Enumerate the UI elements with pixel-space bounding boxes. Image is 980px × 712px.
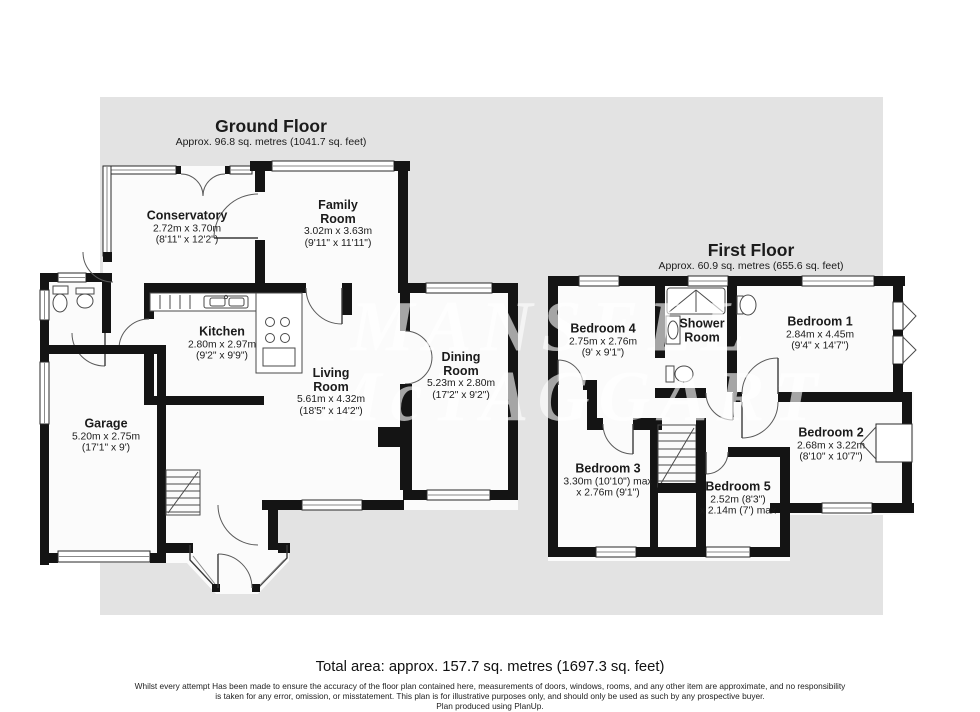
shower-toilet-icon [666,366,693,382]
garage-door [58,551,150,562]
room-label-bedroom-1: Bedroom 1 2.84m x 4.45m (9'4" x 14'7") [786,316,854,353]
disclaimer-line-3: Plan produced using PlanUp. [0,702,980,712]
room-label-family-room: Family Room 3.02m x 3.63m (9'11" x 11'11… [304,199,372,249]
ground-floor-subtitle: Approx. 96.8 sq. metres (1041.7 sq. feet… [176,136,367,149]
kitchen-sink-counter [150,293,262,311]
ground-floor-title-text: Ground Floor [176,117,367,136]
shower-enclosure [667,288,725,314]
room-label-kitchen: Kitchen 2.80m x 2.97m (9'2" x 9'9") [188,326,256,363]
room-label-living-room: Living Room 5.61m x 4.32m (18'5" x 14'2"… [297,367,365,417]
bedroom1-basin-icon [737,295,756,315]
first-floor-subtitle: Approx. 60.9 sq. metres (655.6 sq. feet) [658,260,843,273]
wc-basin-icon [76,288,94,308]
kitchen-hob-counter [256,293,302,373]
wc-toilet-icon [53,286,68,312]
footer: Total area: approx. 157.7 sq. metres (16… [0,659,980,711]
room-label-conservatory: Conservatory 2.72m x 3.70m (8'11" x 12'2… [147,210,228,247]
bedroom1-bay-windows [893,276,916,402]
room-label-bedroom-2: Bedroom 2 2.68m x 3.22m (8'10" x 10'7") [797,427,865,464]
room-label-bedroom-5: Bedroom 5 2.52m (8'3") x 2.14m (7') max [700,481,776,518]
first-floor-title-text: First Floor [658,241,843,260]
room-label-dining-room: Dining Room 5.23m x 2.80m (17'2" x 9'2") [427,351,495,401]
first-floor-title: First Floor Approx. 60.9 sq. metres (655… [658,241,843,273]
room-label-garage: Garage 5.20m x 2.75m (17'1" x 9') [72,418,140,455]
floorplan-page: MANSELL McTAGGART Ground Floor Approx. 9… [0,0,980,712]
ground-floor-title: Ground Floor Approx. 96.8 sq. metres (10… [176,117,367,149]
room-label-shower-room: Shower Room [671,318,733,345]
room-label-bedroom-3: Bedroom 3 3.30m (10'10") max x 2.76m (9'… [563,463,652,500]
room-label-bedroom-4: Bedroom 4 2.75m x 2.76m (9' x 9'1") [569,323,637,360]
total-area-text: Total area: approx. 157.7 sq. metres (16… [0,659,980,675]
